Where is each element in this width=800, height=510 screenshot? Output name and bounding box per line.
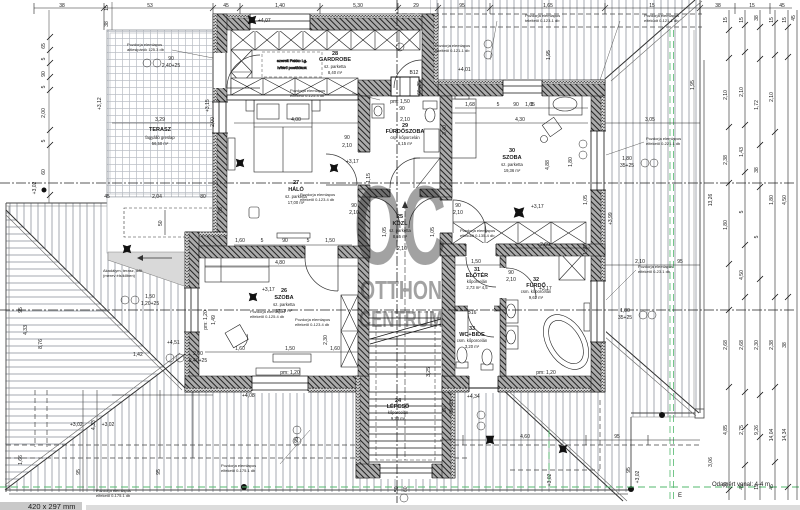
svg-text:elfekető 0-221.1 db: elfekető 0-221.1 db: [646, 141, 681, 146]
svg-text:GARDROBE: GARDROBE: [319, 57, 351, 63]
svg-text:4,00: 4,00: [291, 117, 301, 123]
svg-text:5: 5: [41, 85, 47, 88]
svg-text:1,95: 1,95: [690, 80, 696, 90]
svg-text:2,00: 2,00: [193, 351, 203, 357]
svg-text:+3,12: +3,12: [97, 97, 103, 110]
svg-text:+3,02: +3,02: [102, 422, 115, 428]
svg-text:38: 38: [715, 3, 721, 9]
svg-text:4,85: 4,85: [723, 425, 729, 435]
svg-text:2,10: 2,10: [453, 210, 463, 216]
svg-text:38: 38: [782, 342, 788, 348]
svg-text:15: 15: [723, 17, 729, 23]
svg-text:1,60: 1,60: [330, 346, 340, 352]
svg-text:2,30: 2,30: [323, 335, 329, 345]
svg-text:elfekető 0-175.1 db: elfekető 0-175.1 db: [221, 468, 256, 473]
svg-text:+3,02: +3,02: [70, 422, 83, 428]
svg-text:+4,34: +4,34: [467, 394, 480, 400]
svg-text:2,00: 2,00: [41, 108, 47, 118]
svg-text:53: 53: [147, 3, 153, 9]
svg-text:ELŐTÉR: ELŐTÉR: [466, 271, 488, 279]
svg-text:4,30: 4,30: [515, 117, 525, 123]
svg-text:2,38: 2,38: [723, 155, 729, 165]
svg-text:2,00: 2,00: [210, 117, 216, 127]
svg-text:1,68: 1,68: [465, 102, 475, 108]
svg-text:4,60: 4,60: [520, 434, 530, 440]
svg-text:1,42: 1,42: [133, 352, 143, 358]
svg-text:2,04: 2,04: [152, 194, 162, 200]
svg-text:(merev élsíkőben): (merev élsíkőben): [103, 273, 136, 278]
svg-text:1,80: 1,80: [769, 195, 775, 205]
svg-text:85: 85: [218, 207, 224, 213]
svg-text:14,04: 14,04: [769, 429, 775, 442]
svg-text:+3,17: +3,17: [539, 286, 552, 292]
svg-text:sz. parketta: sz. parketta: [324, 64, 346, 69]
svg-text:pm: 1,20: pm: 1,20: [536, 370, 556, 376]
svg-text:90: 90: [399, 106, 405, 112]
svg-text:3,40: 3,40: [442, 125, 448, 135]
svg-text:45: 45: [104, 194, 110, 200]
svg-text:elfeküdt 0-135-4 db: elfeküdt 0-135-4 db: [460, 233, 495, 238]
svg-text:8,40 m²: 8,40 m²: [328, 70, 343, 75]
svg-text:1,65: 1,65: [525, 102, 535, 108]
svg-text:95: 95: [677, 259, 683, 265]
svg-text:5,30: 5,30: [353, 3, 363, 9]
svg-text:3,05: 3,05: [645, 117, 655, 123]
svg-text:+3,17: +3,17: [531, 204, 544, 210]
svg-text:95: 95: [614, 434, 620, 440]
svg-text:teleltető 0-121-1 db: teleltető 0-121-1 db: [435, 48, 470, 53]
svg-text:OTTHON: OTTHON: [360, 275, 442, 305]
svg-text:1,60: 1,60: [235, 238, 245, 244]
svg-text:1,60: 1,60: [235, 346, 245, 352]
svg-text:csp. kőporcelán: csp. kőporcelán: [390, 135, 420, 140]
svg-text:kőporcelán: kőporcelán: [388, 410, 409, 415]
svg-text:pm: 1,20: pm: 1,20: [280, 370, 300, 376]
svg-text:1,80: 1,80: [622, 156, 632, 162]
svg-text:elfekető 0-23.1 db: elfekető 0-23.1 db: [638, 269, 671, 274]
svg-text:fagyálló greslap: fagyálló greslap: [145, 135, 175, 140]
svg-text:35+25: 35+25: [620, 163, 634, 169]
svg-text:1,50: 1,50: [325, 238, 335, 244]
svg-text:+3,02: +3,02: [547, 473, 553, 486]
svg-text:elfekető 0-125.3 db: elfekető 0-125.3 db: [290, 93, 325, 98]
svg-text:2,73 m² 4,5: 2,73 m² 4,5: [466, 285, 488, 290]
svg-text:15: 15: [649, 3, 655, 9]
svg-text:2,10: 2,10: [723, 90, 729, 100]
svg-text:50: 50: [158, 220, 164, 226]
svg-text:38: 38: [754, 167, 760, 173]
svg-text:2,10: 2,10: [506, 277, 516, 283]
svg-text:csm. kőporcelán: csm. kőporcelán: [457, 338, 488, 343]
svg-text:19,36 m²: 19,36 m²: [504, 168, 521, 173]
svg-text:1,50: 1,50: [145, 294, 155, 300]
svg-text:elfekető 0-123.4 db: elfekető 0-123.4 db: [295, 322, 330, 327]
svg-text:90: 90: [168, 56, 174, 62]
svg-text:FÜRDŐSZOBA: FÜRDŐSZOBA: [386, 128, 425, 135]
svg-text:14,34: 14,34: [782, 429, 788, 442]
svg-text:2,30: 2,30: [754, 340, 760, 350]
svg-text:1,66: 1,66: [18, 455, 24, 465]
svg-text:teleltető 0-123-1 db: teleltető 0-123-1 db: [525, 18, 560, 23]
svg-text:3,25: 3,25: [426, 367, 432, 377]
svg-text:SZOBA: SZOBA: [274, 295, 293, 301]
svg-text:h/férő postfiókok: h/férő postfiókok: [277, 65, 306, 70]
svg-text:kőporcelán: kőporcelán: [467, 279, 488, 284]
svg-text:2,68: 2,68: [723, 340, 729, 350]
svg-text:9,26: 9,26: [754, 425, 760, 435]
svg-text:B12: B12: [410, 70, 419, 76]
svg-text:elfekető 0-175.1 db: elfekető 0-175.1 db: [96, 493, 131, 498]
svg-text:3,06: 3,06: [708, 457, 714, 467]
svg-text:+4,07: +4,07: [258, 18, 271, 24]
svg-text:OC: OC: [354, 163, 446, 288]
svg-text:38: 38: [754, 15, 760, 21]
svg-text:90: 90: [442, 406, 448, 412]
svg-text:2,10: 2,10: [400, 117, 410, 123]
svg-text:80: 80: [200, 194, 206, 200]
svg-text:38: 38: [59, 3, 65, 9]
svg-text:95: 95: [626, 467, 632, 473]
svg-text:+3,17: +3,17: [262, 287, 275, 293]
svg-text:60: 60: [41, 169, 47, 175]
svg-text:60+25: 60+25: [417, 81, 423, 95]
svg-text:1,72: 1,72: [754, 100, 760, 110]
svg-text:6,15 m²: 6,15 m²: [398, 141, 413, 146]
svg-text:E: E: [678, 493, 682, 499]
svg-text:5: 5: [41, 139, 47, 142]
svg-text:50: 50: [394, 486, 400, 492]
svg-text:+4,08: +4,08: [242, 393, 255, 399]
svg-text:45: 45: [223, 3, 229, 9]
svg-text:sz. parketta: sz. parketta: [501, 162, 523, 167]
svg-text:1,50: 1,50: [285, 346, 295, 352]
svg-text:altlesipárók 125.3 db: altlesipárók 125.3 db: [127, 47, 165, 52]
svg-text:2,10: 2,10: [739, 87, 745, 97]
svg-text:elfekető 0-125.4 db: elfekető 0-125.4 db: [250, 314, 285, 319]
svg-text:90: 90: [41, 71, 47, 77]
svg-text:13,26: 13,26: [708, 194, 714, 207]
svg-text:2,10: 2,10: [769, 92, 775, 102]
svg-text:5: 5: [41, 57, 47, 60]
svg-text:+3,15: +3,15: [205, 99, 211, 112]
svg-text:90: 90: [344, 135, 350, 141]
svg-text:1,80: 1,80: [620, 308, 630, 314]
svg-text:90: 90: [513, 102, 519, 108]
svg-text:1,20+25: 1,20+25: [141, 301, 159, 307]
svg-text:95: 95: [459, 3, 465, 9]
svg-text:elfeküdt 0-121-1 db: elfeküdt 0-121-1 db: [644, 18, 679, 23]
svg-text:95: 95: [156, 469, 162, 475]
svg-text:+3,02: +3,02: [32, 181, 38, 194]
svg-text:38: 38: [104, 21, 110, 27]
svg-text:90: 90: [508, 270, 514, 276]
svg-text:1,65: 1,65: [543, 3, 553, 9]
svg-text:SZOBA: SZOBA: [502, 155, 521, 161]
svg-text:pm: 1,50: pm: 1,50: [390, 99, 410, 105]
svg-text:+4,51: +4,51: [167, 340, 180, 346]
svg-text:65: 65: [41, 43, 47, 49]
svg-text:3,20 m²: 3,20 m²: [465, 344, 480, 349]
svg-text:1,43: 1,43: [739, 147, 745, 157]
svg-text:2,40+25: 2,40+25: [162, 63, 180, 69]
svg-text:1,55: 1,55: [583, 245, 589, 255]
svg-text:95: 95: [76, 469, 82, 475]
svg-text:1,50: 1,50: [471, 259, 481, 265]
svg-text:pm: 1,20: pm: 1,20: [203, 310, 209, 330]
svg-text:56,50 m²: 56,50 m²: [152, 141, 169, 146]
svg-text:5: 5: [754, 235, 760, 238]
svg-text:4,50: 4,50: [739, 270, 745, 280]
svg-text:elfekető 0-123.4 db: elfekető 0-123.4 db: [300, 197, 335, 202]
svg-text:2,60: 2,60: [540, 242, 550, 248]
svg-text:szerelt Fakkо i.g.: szerelt Fakkо i.g.: [277, 58, 307, 63]
svg-text:1,80: 1,80: [568, 157, 574, 167]
svg-text:TERASZ: TERASZ: [149, 127, 172, 133]
svg-text:26: 26: [281, 288, 287, 294]
svg-text:2,68: 2,68: [739, 340, 745, 350]
svg-text:2,75: 2,75: [739, 425, 745, 435]
svg-text:29: 29: [413, 3, 419, 9]
svg-text:5: 5: [261, 238, 264, 244]
svg-text:5: 5: [497, 102, 500, 108]
svg-text:+3,02: +3,02: [635, 470, 641, 483]
svg-text:60: 60: [403, 486, 409, 492]
svg-text:95: 95: [18, 307, 24, 313]
svg-text:1,95: 1,95: [546, 50, 552, 60]
svg-text:30: 30: [509, 148, 515, 154]
svg-text:90: 90: [282, 238, 288, 244]
svg-text:5: 5: [307, 238, 310, 244]
svg-text:8,76: 8,76: [38, 339, 44, 349]
svg-text:2,40+25: 2,40+25: [189, 358, 207, 364]
svg-text:B16: B16: [468, 310, 477, 316]
svg-text:15: 15: [782, 17, 788, 23]
svg-text:4,33: 4,33: [91, 420, 97, 430]
svg-text:CENTRUM: CENTRUM: [359, 306, 443, 332]
svg-text:Odamért vonal: 4-4 m: Odamért vonal: 4-4 m: [712, 482, 770, 488]
svg-text:90: 90: [455, 203, 461, 209]
svg-text:45: 45: [779, 3, 785, 9]
svg-text:+3,99: +3,99: [608, 212, 614, 225]
svg-text:4,80: 4,80: [275, 260, 285, 266]
svg-text:15: 15: [739, 17, 745, 23]
svg-text:420 x 297 mm: 420 x 297 mm: [28, 502, 76, 510]
svg-text:35+25: 35+25: [618, 315, 632, 321]
svg-text:sz. parketta: sz. parketta: [273, 302, 295, 307]
svg-text:5: 5: [739, 210, 745, 213]
svg-text:60+25: 60+25: [449, 400, 455, 414]
svg-text:1,49: 1,49: [211, 315, 217, 325]
svg-text:1,05: 1,05: [583, 195, 589, 205]
svg-text:4,88: 4,88: [545, 160, 551, 170]
svg-text:45: 45: [791, 15, 797, 21]
svg-text:1,80: 1,80: [723, 220, 729, 230]
svg-text:4,50: 4,50: [782, 195, 788, 205]
svg-text:1,40: 1,40: [275, 3, 285, 9]
svg-text:+4,01: +4,01: [458, 67, 471, 73]
svg-text:3,29: 3,29: [155, 117, 165, 123]
svg-text:2,10: 2,10: [342, 143, 352, 149]
svg-text:15: 15: [749, 3, 755, 9]
svg-text:4,33: 4,33: [23, 325, 29, 335]
svg-text:2,38: 2,38: [769, 340, 775, 350]
svg-text:15: 15: [769, 17, 775, 23]
